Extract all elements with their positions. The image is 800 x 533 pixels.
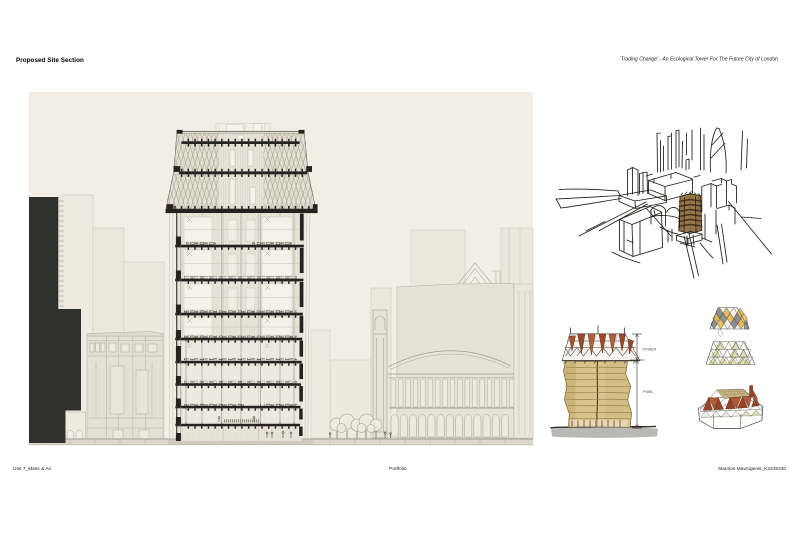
svg-text:TOWER: TOWER [642, 348, 657, 352]
svg-text:Marinos Mavrogenis_K2245330: Marinos Mavrogenis_K2245330 [718, 466, 786, 472]
svg-text:Portfolio: Portfolio [389, 466, 407, 472]
svg-text:PUBL: PUBL [643, 390, 653, 394]
svg-text:'Trading Change' - An Ecologic: 'Trading Change' - An Ecological Tower F… [620, 57, 778, 63]
svg-text:Proposed Site Section: Proposed Site Section [16, 57, 84, 64]
svg-text:Unit 7_Mass & Air: Unit 7_Mass & Air [13, 466, 52, 472]
